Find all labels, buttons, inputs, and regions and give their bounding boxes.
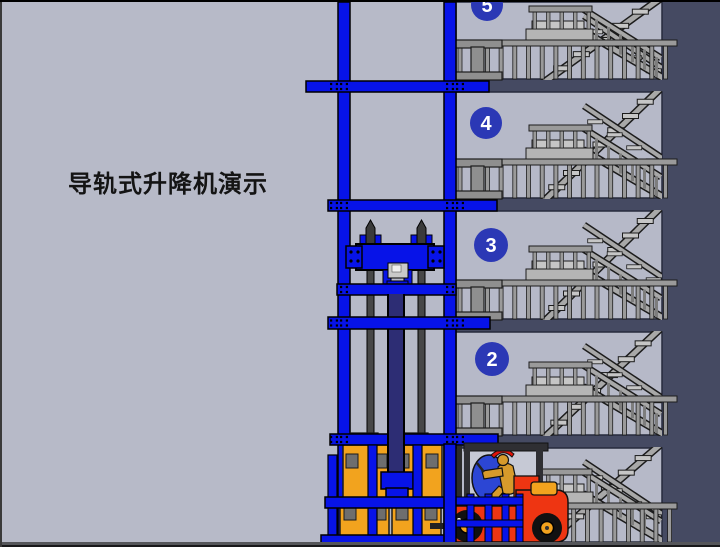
landing-rail-post: [547, 11, 551, 29]
platform-post: [413, 445, 422, 546]
rod-cap-left-part: [366, 220, 375, 245]
bolt: [446, 436, 448, 438]
railing-bar: [595, 46, 599, 79]
stair-baluster: [655, 413, 658, 433]
cross-beam-mid: [337, 284, 456, 295]
carriage-plate-left: [346, 246, 362, 268]
bolt: [446, 88, 448, 90]
landing-rail: [529, 125, 592, 131]
railing-bar: [664, 165, 668, 198]
fence-bar-horizontal: [449, 497, 523, 505]
railing-bar: [650, 165, 654, 198]
stair-tread: [551, 420, 567, 425]
railing-bar: [568, 46, 572, 79]
landing-rail: [529, 362, 592, 368]
railing-bar: [554, 402, 558, 435]
crate-pad: [426, 454, 438, 468]
railing-bar: [668, 509, 672, 542]
bolt: [452, 286, 454, 288]
railing-bar: [513, 46, 517, 79]
ground-line: [0, 542, 720, 546]
bolt: [330, 207, 332, 209]
bolt: [340, 83, 342, 85]
landing-rail-post: [587, 474, 591, 492]
fence-bar-horizontal: [449, 520, 523, 527]
bolt: [336, 202, 338, 204]
railing-bar: [581, 46, 585, 79]
stair-tread: [618, 357, 634, 362]
platform-post: [368, 445, 377, 546]
wall-tie-bracket-part: [456, 191, 502, 199]
cross-beam-upper: [328, 200, 497, 211]
bolt: [346, 286, 348, 288]
wall-tie-bracket-part: [471, 166, 484, 192]
bolt: [349, 250, 352, 253]
bolt: [446, 83, 448, 85]
railing-bar: [609, 46, 613, 79]
floor-badge[interactable]: 2: [475, 342, 509, 376]
landing-rail-post: [560, 130, 564, 148]
bolt: [456, 88, 458, 90]
bolt: [452, 441, 454, 443]
railing-bar: [627, 509, 631, 542]
railing-bar: [554, 46, 558, 79]
stair-baluster: [655, 57, 658, 77]
bolt: [340, 207, 342, 209]
railing-bar: [613, 509, 617, 542]
railing-bar: [527, 402, 531, 435]
stair-baluster: [595, 139, 598, 159]
landing-rail-post: [587, 251, 591, 269]
bolt: [346, 436, 348, 438]
cross-beam-top: [306, 81, 489, 92]
railing-bar: [654, 509, 658, 542]
bolt: [446, 202, 448, 204]
bolt: [336, 441, 338, 443]
counterweight-cap: [531, 482, 557, 495]
bolt: [346, 441, 348, 443]
railing-bar: [640, 509, 644, 542]
floor-badge[interactable]: 3: [474, 228, 508, 262]
cross-beam-floor3: [328, 317, 490, 329]
bolt: [456, 319, 458, 321]
bolt: [340, 436, 342, 438]
landing-rail-post: [547, 130, 551, 148]
crate-pad: [346, 454, 358, 468]
landing-rail-post: [574, 130, 578, 148]
stair-tread: [627, 265, 642, 269]
bolt: [349, 259, 352, 262]
stair-tread: [637, 219, 653, 224]
bolt: [452, 324, 454, 326]
floor-badge-number: 2: [486, 349, 497, 371]
railing-bar: [527, 46, 531, 79]
wall-tie-bracket-part: [456, 72, 502, 80]
left-border: [0, 2, 2, 547]
hoist-motor-part: [392, 265, 401, 272]
bolt: [346, 207, 348, 209]
bolt: [330, 202, 332, 204]
stair-tread: [607, 252, 622, 256]
rear-wheel-part: [545, 526, 549, 530]
railing-bar: [513, 286, 517, 319]
stair-tread: [588, 120, 603, 124]
bolt: [446, 286, 448, 288]
bolt: [462, 207, 464, 209]
railing-bar: [650, 46, 654, 79]
railing-bar: [554, 165, 558, 198]
stair-baluster: [655, 297, 658, 317]
scene-canvas: 5432: [0, 2, 720, 547]
landing-rail-post: [533, 11, 537, 29]
stair-tread: [632, 9, 648, 14]
bolt: [356, 259, 359, 262]
railing-bar: [664, 402, 668, 435]
landing-rail-post: [547, 367, 551, 385]
bolt: [330, 83, 332, 85]
landing-rail: [529, 6, 592, 12]
bolt: [340, 291, 342, 293]
bolt: [452, 436, 454, 438]
railing-bar: [595, 402, 599, 435]
bolt: [330, 88, 332, 90]
landing-rail-post: [533, 130, 537, 148]
bolt: [452, 207, 454, 209]
bolt: [336, 83, 338, 85]
rod-cap-left: [360, 220, 381, 245]
bolt: [452, 83, 454, 85]
platform-deck-rail: [325, 497, 458, 508]
carriage-plate-right: [428, 246, 444, 268]
railing-bar: [568, 402, 572, 435]
floor-badge-number: 4: [480, 113, 492, 135]
railing-bar: [664, 286, 668, 319]
railing-bar: [622, 165, 626, 198]
stair-tread: [637, 99, 653, 104]
stair-baluster: [643, 290, 646, 310]
bolt: [340, 441, 342, 443]
wall-tie-bracket-part: [471, 403, 484, 429]
railing-bar: [622, 46, 626, 79]
stair-tread: [635, 456, 651, 461]
bolt: [346, 202, 348, 204]
wall-tie-bracket-part: [471, 287, 484, 313]
bolt: [330, 324, 332, 326]
bolt: [452, 319, 454, 321]
bolt: [346, 83, 348, 85]
stair-tread: [618, 470, 634, 475]
landing-rail-post: [547, 251, 551, 269]
bolt: [462, 88, 464, 90]
bolt: [346, 88, 348, 90]
bolt: [346, 324, 348, 326]
rod-cap-right: [411, 220, 432, 245]
railing-bar: [609, 165, 613, 198]
railing-bar: [636, 46, 640, 79]
bolt: [340, 286, 342, 288]
stair-tread: [588, 239, 603, 243]
railing-bar: [650, 286, 654, 319]
landing-rail-post: [587, 130, 591, 148]
railing-bar: [513, 402, 517, 435]
stair-tread: [607, 133, 622, 137]
bolt: [438, 250, 441, 253]
bolt: [346, 319, 348, 321]
railing-bar: [650, 402, 654, 435]
stair-baluster: [595, 20, 598, 40]
railing-bar: [636, 402, 640, 435]
bolt: [330, 319, 332, 321]
bolt: [431, 250, 434, 253]
landing-rail-post: [560, 251, 564, 269]
bolt: [336, 324, 338, 326]
bolt: [330, 436, 332, 438]
lift-channel-lower: [387, 336, 405, 475]
stair-tread: [635, 341, 651, 346]
rod-cap-right-part: [417, 220, 426, 245]
bolt: [340, 88, 342, 90]
landing-rail-post: [587, 11, 591, 29]
landing-rail-post: [574, 474, 578, 492]
bolt: [438, 259, 441, 262]
stair-baluster: [643, 169, 646, 189]
bolt: [336, 436, 338, 438]
floor-badge-number: 5: [481, 2, 492, 17]
railing-bar: [554, 286, 558, 319]
bolt: [462, 202, 464, 204]
floor-badge-number: 3: [485, 235, 496, 257]
bolt: [446, 324, 448, 326]
bolt: [452, 291, 454, 293]
lift-channel-lower-part: [388, 336, 404, 475]
stair-tread: [627, 146, 642, 150]
railing-bar: [636, 165, 640, 198]
stair-baluster: [655, 176, 658, 196]
bolt: [340, 324, 342, 326]
railing-bar: [585, 509, 589, 542]
railing-bar: [595, 286, 599, 319]
overhead-guard-top: [464, 443, 548, 451]
landing-rail-post: [533, 251, 537, 269]
bolt: [346, 291, 348, 293]
floor-badge[interactable]: 4: [470, 107, 502, 139]
bolt: [452, 88, 454, 90]
bolt: [336, 88, 338, 90]
driver-head: [498, 455, 509, 466]
stair-tread: [627, 386, 642, 390]
bolt: [340, 319, 342, 321]
overhead-guard-front-post: [464, 449, 470, 501]
channel-foot: [381, 472, 413, 489]
railing-bar: [540, 402, 544, 435]
landing-rail-post: [560, 367, 564, 385]
railing-bar: [540, 165, 544, 198]
lift-channel-lower-part: [387, 336, 389, 475]
railing-bar: [581, 402, 585, 435]
bolt: [456, 441, 458, 443]
stair-baluster: [643, 50, 646, 70]
lift-channel-lower-part: [403, 336, 405, 475]
stair-tread: [623, 114, 639, 119]
bolt: [446, 319, 448, 321]
bolt: [462, 83, 464, 85]
railing-bar: [568, 286, 572, 319]
railing-bar: [513, 165, 517, 198]
bolt: [462, 319, 464, 321]
wall-tie-bracket-part: [471, 47, 484, 73]
railing-bar: [622, 286, 626, 319]
bolt: [330, 441, 332, 443]
railing-bar: [595, 165, 599, 198]
bolt: [462, 436, 464, 438]
bolt: [340, 202, 342, 204]
stair-baluster: [595, 260, 598, 280]
railing-top-rail: [556, 503, 677, 509]
bolt: [446, 207, 448, 209]
landing-rail-post: [574, 11, 578, 29]
railing-bar: [599, 509, 603, 542]
stair-baluster: [643, 406, 646, 426]
railing-bar: [609, 286, 613, 319]
bolt: [456, 324, 458, 326]
stair-baluster: [595, 483, 598, 503]
stair-tread: [623, 233, 639, 238]
landing-rail: [529, 246, 592, 252]
railing-bar: [622, 402, 626, 435]
stair-tread: [607, 373, 622, 377]
bolt: [452, 202, 454, 204]
bolt: [456, 436, 458, 438]
demo-title: 导轨式升降机演示: [68, 164, 298, 199]
bolt: [456, 83, 458, 85]
railing-bar: [527, 165, 531, 198]
bolt: [456, 207, 458, 209]
bolt: [456, 202, 458, 204]
bolt: [446, 291, 448, 293]
railing-bar: [581, 165, 585, 198]
railing-bar: [540, 46, 544, 79]
landing-rail-post: [574, 367, 578, 385]
railing-bar: [568, 165, 572, 198]
landing-rail-post: [533, 367, 537, 385]
landing-rail-post: [560, 11, 564, 29]
bolt: [462, 324, 464, 326]
right-mast-front: [444, 444, 456, 543]
bolt: [336, 207, 338, 209]
lift-demo-stage: 5432: [0, 0, 720, 547]
rear-wheel: [532, 513, 562, 543]
bolt: [446, 441, 448, 443]
railing-bar: [636, 286, 640, 319]
railing-bar: [581, 286, 585, 319]
railing-bar: [540, 286, 544, 319]
railing-bar: [609, 402, 613, 435]
stair-baluster: [595, 376, 598, 396]
bolt: [431, 259, 434, 262]
landing-rail-post: [560, 474, 564, 492]
railing-bar: [527, 286, 531, 319]
railing-bar: [664, 46, 668, 79]
bolt: [356, 250, 359, 253]
landing-rail-post: [587, 367, 591, 385]
railing-bar: [572, 509, 576, 542]
bolt: [336, 319, 338, 321]
landing-rail-post: [574, 251, 578, 269]
